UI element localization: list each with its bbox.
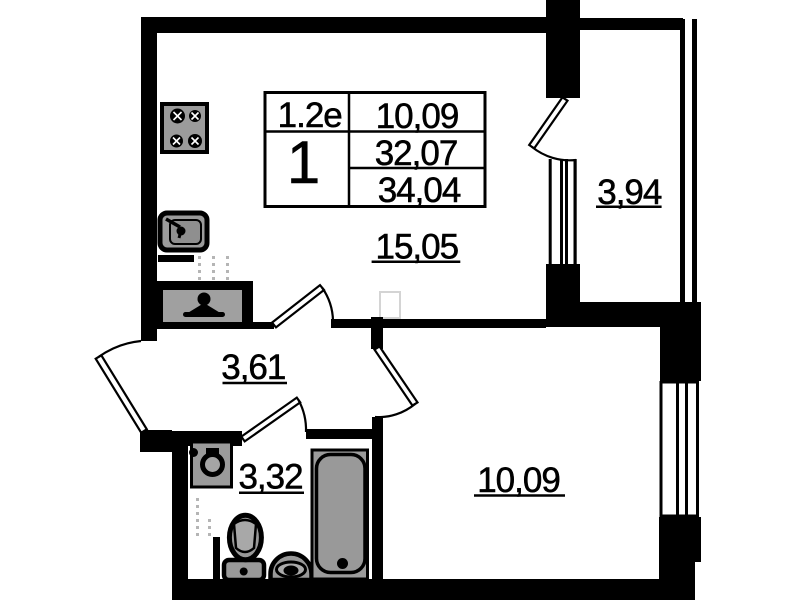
svg-text:10,09: 10,09 [477, 461, 560, 500]
svg-text:3,32: 3,32 [238, 458, 302, 497]
svg-text:3,61: 3,61 [221, 348, 285, 387]
svg-text:1: 1 [287, 129, 320, 196]
svg-text:10,09: 10,09 [376, 97, 459, 136]
svg-text:32,07: 32,07 [375, 134, 458, 173]
svg-text:34,04: 34,04 [378, 171, 461, 210]
